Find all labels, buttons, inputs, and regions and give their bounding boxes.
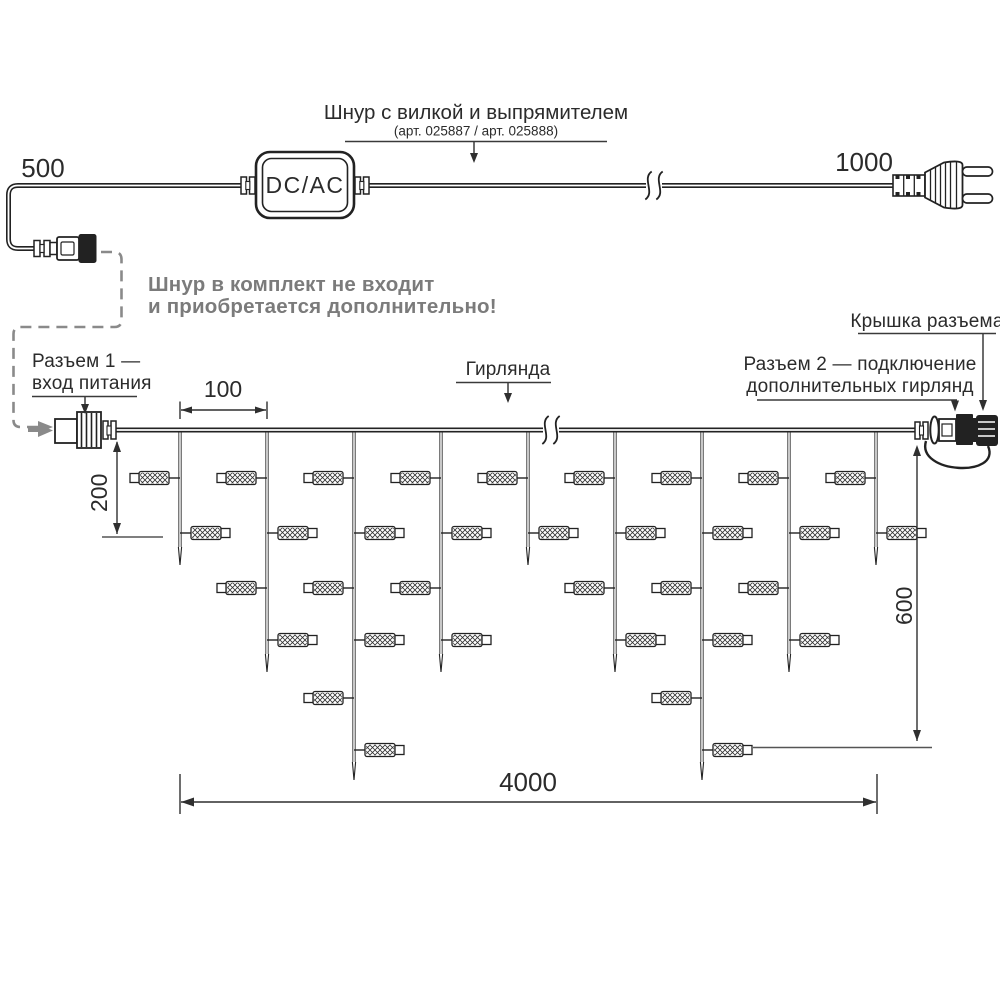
garland-section: Разъем 1 — вход питания Гирлянда: [28, 172, 1000, 815]
bulb-icon: [789, 634, 839, 647]
arrow-down-icon: [913, 730, 921, 741]
arrow-right-icon: [255, 407, 266, 414]
garland-callout: Гирлянда: [456, 359, 551, 403]
title-callout: Шнур с вилкой и выпрямителем (арт. 02588…: [324, 101, 628, 163]
plug-prong: [963, 167, 993, 176]
power-plug-icon: [893, 161, 993, 208]
garland-drop-9: [826, 432, 926, 565]
garland-drop-2: [217, 432, 317, 672]
arrow-down-icon: [504, 393, 512, 403]
garland-drop-3: [304, 432, 404, 780]
bulb-icon: [354, 744, 404, 757]
bulb-icon: [528, 527, 578, 540]
bulb-icon: [354, 527, 404, 540]
female-connector-icon: [34, 235, 96, 263]
connector2-label-line2: дополнительных гирлянд: [746, 376, 973, 397]
garland-drop-7: [652, 432, 752, 780]
garland-label: Гирлянда: [466, 359, 551, 380]
drop-tip: [876, 547, 878, 565]
bulb-icon: [615, 634, 665, 647]
bulb-icon: [702, 744, 752, 757]
garland-drop-1: [130, 432, 230, 565]
bulb-icon: [702, 634, 752, 647]
cord-subtitle: (арт. 025887 / арт. 025888): [394, 124, 558, 139]
break-symbols: [542, 172, 662, 445]
bulb-icon: [267, 527, 317, 540]
dim-500-label: 500: [21, 153, 64, 183]
drop-tip: [441, 654, 443, 672]
garland-drop-8: [739, 432, 839, 672]
bulb-icon: [217, 582, 267, 595]
dim-short-drop: 200: [86, 441, 163, 537]
garland-drop-6: [565, 432, 665, 672]
plug-prong: [963, 194, 993, 203]
dashed-route: [14, 252, 122, 433]
bulb-icon: [565, 472, 615, 485]
dc-ac-label: DC/AC: [265, 172, 344, 198]
bulb-icon: [652, 692, 702, 705]
bulb-icon: [180, 527, 230, 540]
arrow-left-icon: [181, 407, 192, 414]
bulb-icon: [652, 472, 702, 485]
dim-100-label: 100: [204, 376, 242, 402]
bulb-icon: [304, 472, 354, 485]
cord-note: Шнур в комплект не входит и приобретаетс…: [148, 273, 497, 318]
cord-title: Шнур с вилкой и выпрямителем: [324, 101, 628, 124]
bulb-icon: [826, 472, 876, 485]
garland-drops: [130, 432, 926, 780]
dim-200-label: 200: [86, 474, 112, 512]
drop-tip: [180, 547, 182, 565]
drop-tip: [354, 762, 356, 780]
bulb-icon: [739, 582, 789, 595]
arrow-up-icon: [913, 445, 921, 456]
connector2-body-black: [956, 414, 973, 445]
arrow-down-icon: [951, 401, 959, 412]
bulb-icon: [565, 582, 615, 595]
dim-long-drop: 600: [753, 445, 932, 748]
break-symbol-icon: [542, 416, 559, 444]
dim-4000-label: 4000: [499, 767, 557, 797]
connector1-label-line2: вход питания: [32, 373, 152, 394]
garland-diagram: DC/AC 500 1000 Шнур с в: [0, 0, 1000, 1000]
bulb-icon: [478, 472, 528, 485]
bulb-icon: [354, 634, 404, 647]
connector1-callout: Разъем 1 — вход питания: [32, 351, 152, 414]
arrow-down-icon: [979, 400, 987, 411]
bulb-icon: [217, 472, 267, 485]
dim-1000-label: 1000: [835, 147, 893, 177]
dim-drop-spacing: 100: [180, 376, 267, 419]
note-line1: Шнур в комплект не входит: [148, 273, 434, 296]
arrow-up-icon: [113, 441, 121, 452]
connector-cap-black: [79, 235, 96, 263]
drop-tip: [615, 654, 617, 672]
cap-icon: [972, 415, 998, 446]
connector2-callout: Разъем 2 — подключение дополнительных ги…: [743, 354, 976, 412]
bulb-icon: [391, 472, 441, 485]
arrow-down-icon: [470, 153, 478, 163]
bulb-icon: [267, 634, 317, 647]
garland-drop-4: [391, 432, 491, 672]
bulb-icon: [304, 582, 354, 595]
drop-tip: [267, 654, 269, 672]
arrow-left-icon: [181, 798, 194, 807]
diagram-canvas: DC/AC 500 1000 Шнур с в: [0, 0, 1000, 1000]
break-symbol-icon: [645, 172, 662, 200]
cap-label: Крышка разъема: [850, 311, 1000, 332]
dim-total-length: 4000: [180, 767, 877, 814]
dc-ac-converter: DC/AC: [241, 152, 369, 218]
bulb-icon: [391, 582, 441, 595]
bulb-icon: [441, 634, 491, 647]
arrow-right-icon: [863, 798, 876, 807]
bulb-icon: [615, 527, 665, 540]
bulb-icon: [702, 527, 752, 540]
connector1-label-line1: Разъем 1 —: [32, 351, 140, 372]
connector2-label-line1: Разъем 2 — подключение: [743, 354, 976, 375]
bulb-icon: [441, 527, 491, 540]
drop-tip: [528, 547, 530, 565]
bulb-icon: [130, 472, 180, 485]
bulb-icon: [789, 527, 839, 540]
connector1-icon: [28, 412, 116, 448]
bulb-icon: [876, 527, 926, 540]
arrow-down-icon: [113, 523, 121, 534]
bulb-icon: [652, 582, 702, 595]
bulb-icon: [739, 472, 789, 485]
drop-tip: [789, 654, 791, 672]
power-cord-wire-left: [9, 186, 244, 249]
note-line2: и приобретается дополнительно!: [148, 295, 497, 318]
dim-600-label: 600: [891, 587, 917, 625]
garland-drop-5: [478, 432, 578, 565]
bulb-icon: [304, 692, 354, 705]
connector2-icon: [915, 414, 998, 468]
drop-tip: [702, 762, 704, 780]
